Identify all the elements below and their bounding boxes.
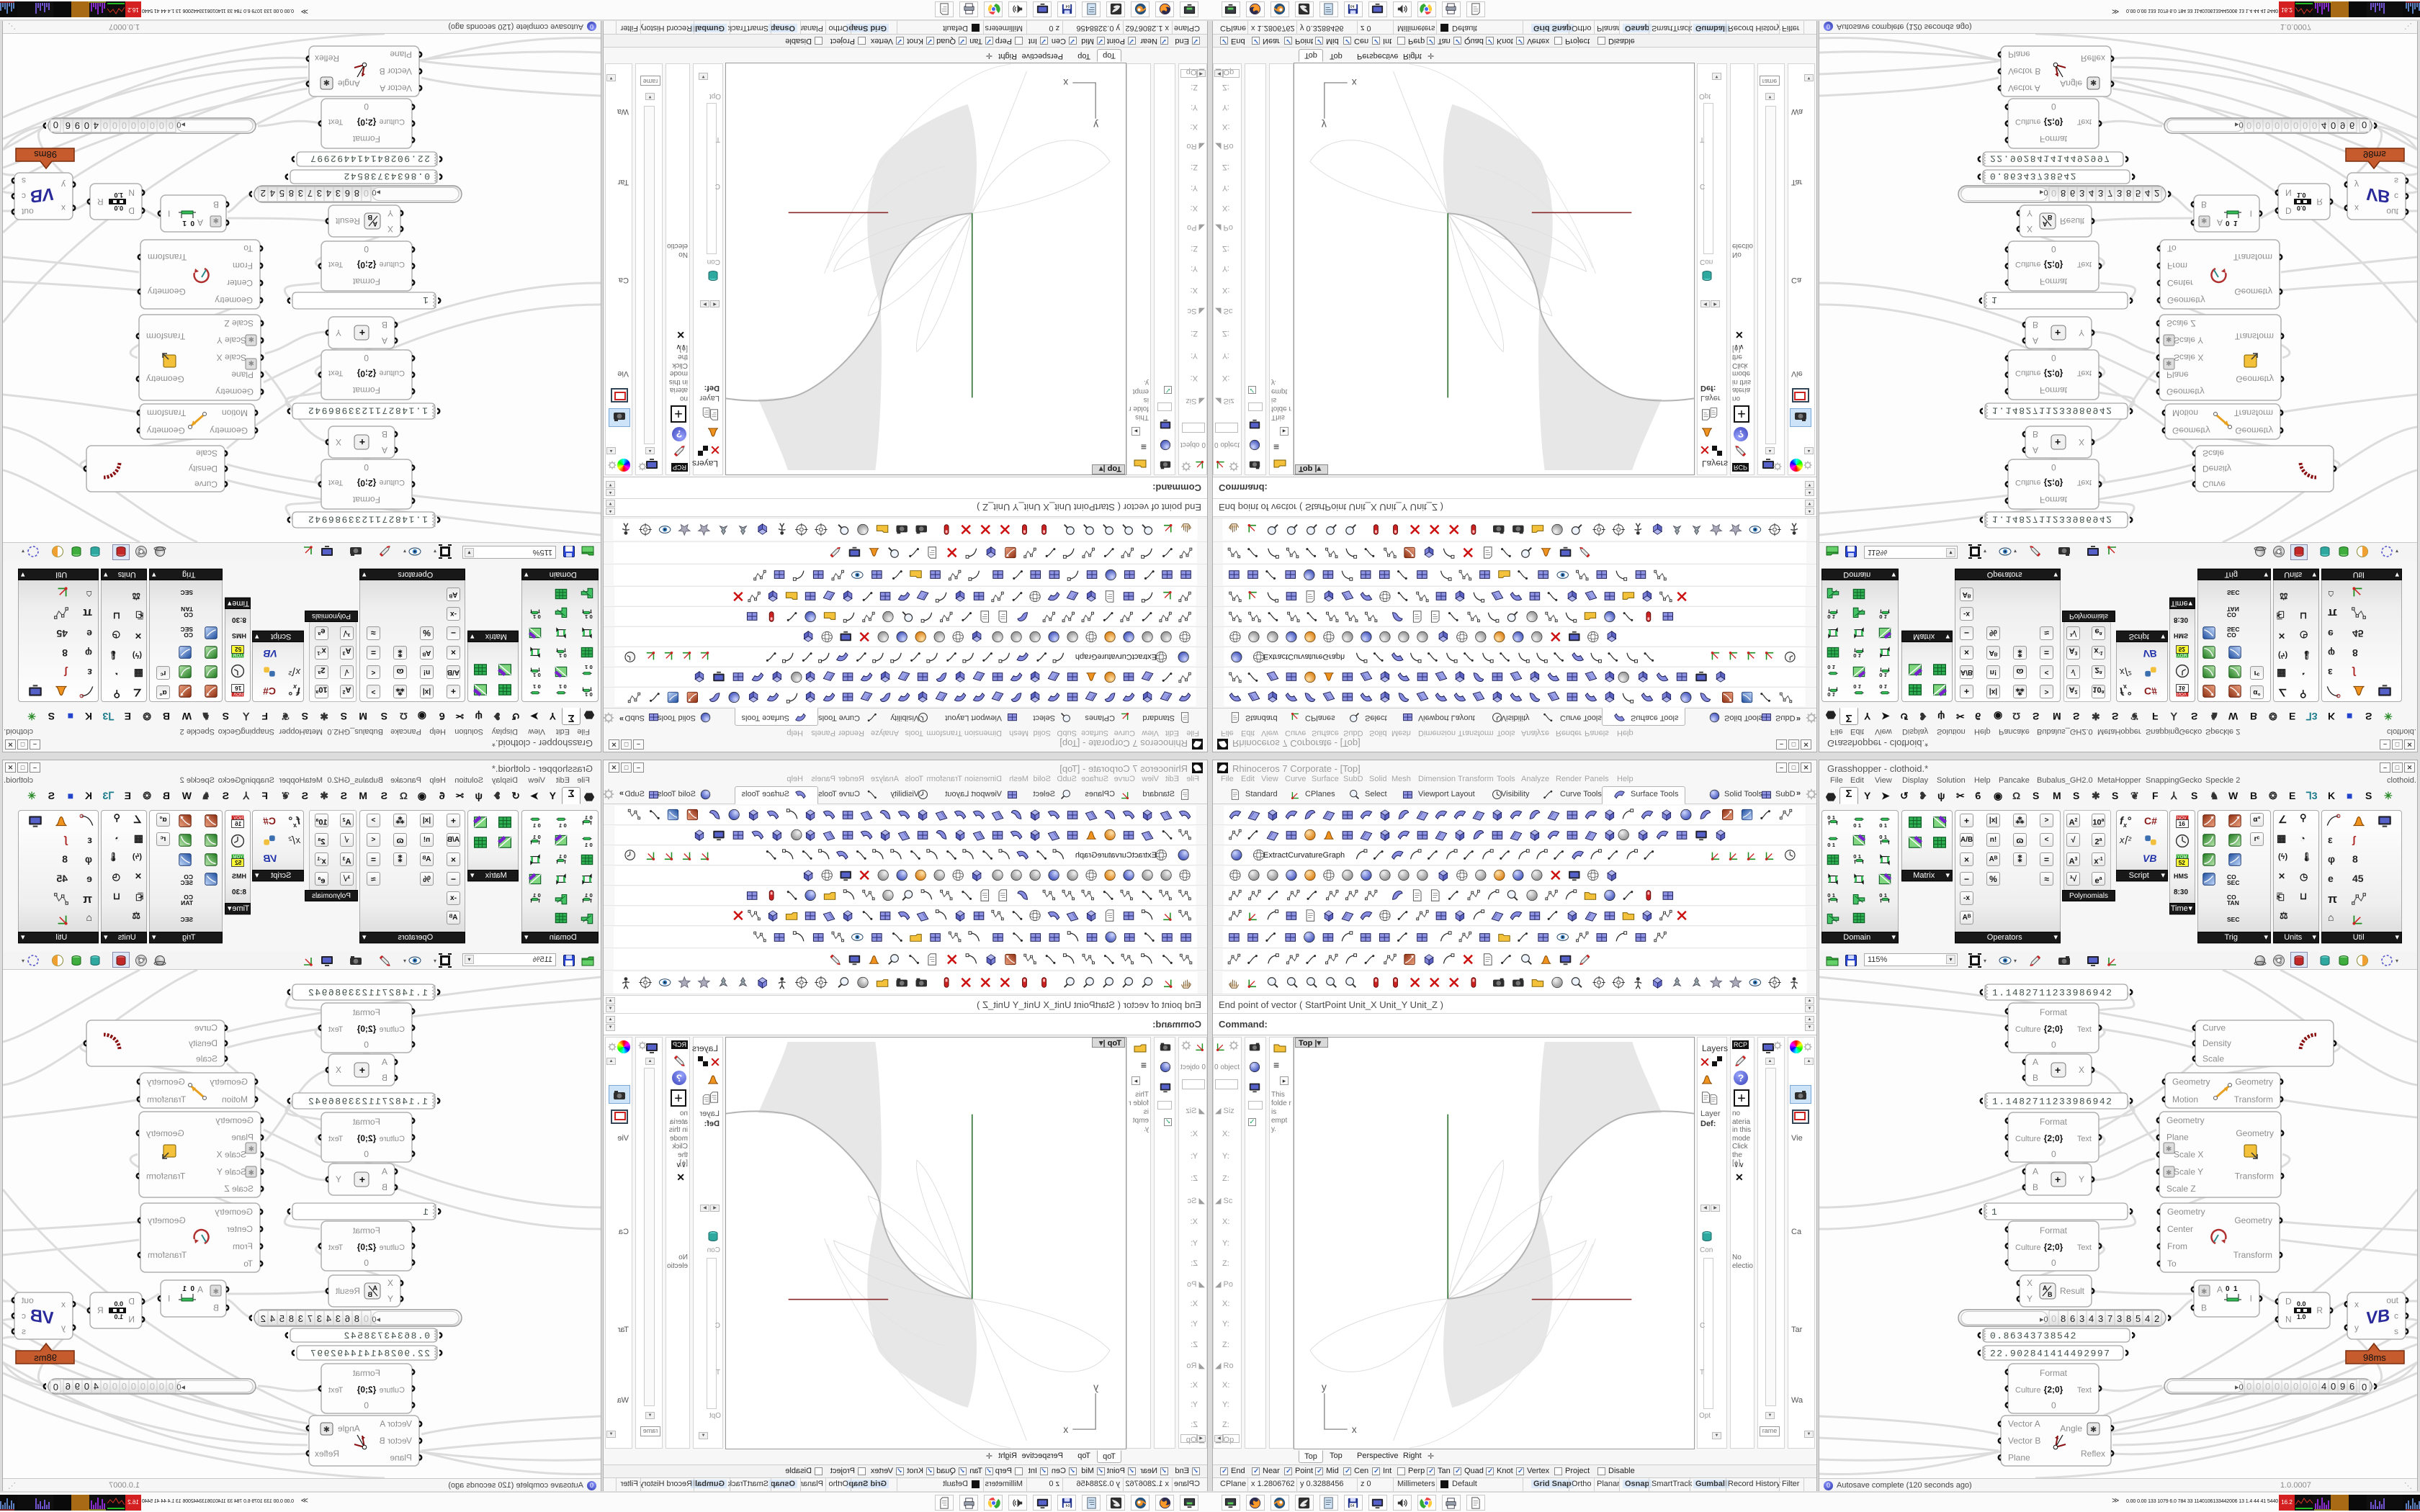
svg-text:B: B xyxy=(2033,1073,2038,1083)
svg-text:A: A xyxy=(382,445,387,455)
svg-text:From: From xyxy=(233,261,253,271)
svg-text:0: 0 xyxy=(2303,1381,2308,1392)
svg-text:To: To xyxy=(2167,1259,2177,1269)
svg-text:From: From xyxy=(2167,1241,2187,1251)
svg-text:0: 0 xyxy=(190,219,194,227)
svg-text:R: R xyxy=(2316,197,2323,207)
svg-text:Text: Text xyxy=(328,1243,343,1252)
svg-text:{2;0}: {2;0} xyxy=(357,260,376,270)
svg-text:X: X xyxy=(2079,437,2084,447)
svg-text:s: s xyxy=(2394,1326,2398,1336)
svg-text:0.86343738542: 0.86343738542 xyxy=(343,171,430,181)
svg-text:Scale Z: Scale Z xyxy=(2166,318,2196,328)
svg-text:Culture: Culture xyxy=(380,117,405,126)
svg-text:Geometry: Geometry xyxy=(215,295,253,305)
svg-text:Geometry: Geometry xyxy=(146,1128,184,1138)
svg-text:Text: Text xyxy=(328,260,343,269)
svg-text:Format: Format xyxy=(352,495,380,505)
svg-text:4: 4 xyxy=(2145,188,2150,199)
svg-text:Result: Result xyxy=(2060,216,2085,226)
svg-text:0.0: 0.0 xyxy=(114,204,123,212)
svg-text:1: 1 xyxy=(1991,294,1998,305)
svg-text:Geometry: Geometry xyxy=(2167,295,2205,305)
svg-text:Vector A: Vector A xyxy=(2008,1419,2040,1429)
svg-text:✱: ✱ xyxy=(248,1146,254,1153)
svg-text:A: A xyxy=(382,1166,387,1176)
svg-text:0: 0 xyxy=(2256,1381,2261,1392)
svg-text:0: 0 xyxy=(2051,1400,2056,1410)
svg-text:0: 0 xyxy=(84,1381,89,1392)
svg-text:Y: Y xyxy=(2027,1294,2033,1304)
svg-text:0: 0 xyxy=(2246,1381,2251,1392)
svg-text:0: 0 xyxy=(131,120,136,131)
svg-text:Culture: Culture xyxy=(2015,117,2040,126)
svg-text:{2;0}: {2;0} xyxy=(357,117,376,127)
svg-text:1.0: 1.0 xyxy=(114,192,123,199)
svg-text:y: y xyxy=(2354,1323,2359,1333)
svg-text:4: 4 xyxy=(2089,1313,2094,1324)
svg-text:0: 0 xyxy=(2331,120,2336,131)
svg-text:Vector B: Vector B xyxy=(380,1436,412,1446)
svg-text:0: 0 xyxy=(53,120,58,130)
svg-text:Culture: Culture xyxy=(380,260,405,269)
svg-text:3: 3 xyxy=(2079,1313,2084,1324)
svg-text:0: 0 xyxy=(150,120,155,131)
svg-text:✱: ✱ xyxy=(213,1288,219,1296)
svg-text:B: B xyxy=(2201,199,2207,210)
svg-text:Geometry: Geometry xyxy=(2172,426,2210,436)
svg-text:I: I xyxy=(2250,209,2252,219)
svg-text:0: 0 xyxy=(2362,1382,2367,1392)
svg-text:0: 0 xyxy=(2284,120,2289,131)
svg-text:Culture: Culture xyxy=(380,369,405,377)
svg-text:2: 2 xyxy=(261,188,266,199)
svg-text:0.0: 0.0 xyxy=(114,1300,123,1308)
svg-text:B: B xyxy=(382,1182,387,1192)
svg-text:B: B xyxy=(382,320,387,330)
svg-text:B: B xyxy=(382,429,387,439)
svg-text:3: 3 xyxy=(317,1313,322,1324)
svg-text:3: 3 xyxy=(2079,188,2084,199)
svg-text:0: 0 xyxy=(364,462,369,472)
svg-text:+: + xyxy=(359,1174,365,1185)
svg-text:+: + xyxy=(2055,1174,2061,1185)
svg-text:1.1482711233986942: 1.1482711233986942 xyxy=(1992,988,2112,999)
svg-text:Plane: Plane xyxy=(390,50,412,60)
svg-text:8: 8 xyxy=(289,188,294,199)
svg-text:5: 5 xyxy=(279,188,284,199)
svg-text:x: x xyxy=(61,1299,66,1309)
svg-text:0: 0 xyxy=(364,102,369,112)
svg-text:✱: ✱ xyxy=(2166,335,2172,343)
svg-text:0: 0 xyxy=(2265,1381,2270,1392)
svg-text:s: s xyxy=(22,176,26,186)
svg-text:Vector A: Vector A xyxy=(380,83,412,93)
svg-text:out: out xyxy=(2386,1295,2398,1305)
svg-text:0: 0 xyxy=(2362,120,2367,130)
svg-text:Text: Text xyxy=(328,1135,343,1143)
svg-text:6: 6 xyxy=(2349,120,2354,131)
svg-text:B: B xyxy=(382,1073,387,1083)
svg-text:To: To xyxy=(243,243,253,253)
svg-text:3: 3 xyxy=(2117,188,2122,199)
svg-text:B: B xyxy=(2048,214,2053,221)
svg-text:Culture: Culture xyxy=(380,1025,405,1034)
svg-text:Format: Format xyxy=(2040,1368,2068,1378)
svg-text:Text: Text xyxy=(2077,478,2092,487)
svg-text:6: 6 xyxy=(66,1381,71,1392)
svg-text:Scale Z: Scale Z xyxy=(224,318,254,328)
svg-text:R: R xyxy=(2316,1305,2323,1315)
svg-text:Text: Text xyxy=(2077,117,2092,126)
svg-text:Scale Z: Scale Z xyxy=(224,1184,254,1194)
svg-text:s: s xyxy=(2394,176,2398,186)
svg-text:Transform: Transform xyxy=(2233,1250,2272,1260)
svg-text:6: 6 xyxy=(2349,1381,2354,1392)
svg-text:6: 6 xyxy=(2070,1313,2075,1324)
svg-text:D: D xyxy=(2285,1297,2292,1307)
svg-text:Geometry: Geometry xyxy=(2234,287,2272,297)
svg-text:Curve: Curve xyxy=(2202,1023,2226,1033)
svg-text:98ms: 98ms xyxy=(2363,1352,2386,1363)
svg-text:3: 3 xyxy=(336,1313,341,1324)
svg-text:Geometry: Geometry xyxy=(215,387,254,397)
svg-text:0: 0 xyxy=(2051,1313,2056,1324)
svg-text:5: 5 xyxy=(2136,1313,2141,1324)
svg-text:1.0: 1.0 xyxy=(2297,192,2306,199)
svg-text:Y: Y xyxy=(336,328,341,338)
svg-text:Format: Format xyxy=(352,1117,380,1127)
svg-text:X: X xyxy=(387,1278,393,1288)
svg-text:1.1482711233986942: 1.1482711233986942 xyxy=(308,1097,428,1107)
svg-text:Center: Center xyxy=(2167,278,2193,288)
svg-text:X: X xyxy=(2027,224,2033,234)
svg-text:0: 0 xyxy=(103,120,108,131)
svg-text:0: 0 xyxy=(2293,1381,2298,1392)
svg-text:3: 3 xyxy=(2098,188,2103,199)
svg-text:Format: Format xyxy=(352,276,380,287)
svg-text:3: 3 xyxy=(298,188,303,199)
svg-text:✱: ✱ xyxy=(2166,359,2172,366)
svg-text:VB: VB xyxy=(2365,1306,2391,1328)
svg-text:Y: Y xyxy=(2079,1174,2084,1184)
svg-text:1.1482711233986942: 1.1482711233986942 xyxy=(308,988,428,999)
svg-text:Curve: Curve xyxy=(2202,479,2226,489)
svg-text:Culture: Culture xyxy=(380,478,405,487)
svg-text:Reflex: Reflex xyxy=(315,53,339,63)
svg-text:0: 0 xyxy=(2331,1381,2336,1392)
svg-text:0: 0 xyxy=(364,1258,369,1268)
svg-text:+: + xyxy=(2055,436,2061,448)
svg-text:{2;0}: {2;0} xyxy=(357,1385,376,1395)
svg-text:Culture: Culture xyxy=(2015,1135,2040,1143)
svg-text:Culture: Culture xyxy=(380,1386,405,1395)
svg-text:Geometry: Geometry xyxy=(2235,426,2273,436)
svg-text:Format: Format xyxy=(352,385,380,395)
svg-text:6: 6 xyxy=(66,120,71,131)
svg-text:Text: Text xyxy=(2077,260,2092,269)
svg-text:Text: Text xyxy=(2077,1386,2092,1395)
svg-text:VB: VB xyxy=(29,1306,55,1328)
svg-text:0: 0 xyxy=(159,1381,164,1392)
svg-text:22.902841414492997: 22.902841414492997 xyxy=(310,1349,430,1359)
svg-text:{2;0}: {2;0} xyxy=(357,478,376,488)
svg-text:Result: Result xyxy=(2060,1286,2085,1296)
svg-text:✱: ✱ xyxy=(2090,1426,2097,1434)
svg-text:1.1482711233986942: 1.1482711233986942 xyxy=(308,405,428,416)
svg-text:B: B xyxy=(213,199,219,210)
svg-text:1: 1 xyxy=(422,294,429,305)
svg-text:9: 9 xyxy=(75,1381,80,1392)
svg-text:7: 7 xyxy=(2107,1313,2112,1324)
svg-text:▸0: ▸0 xyxy=(2235,120,2244,129)
svg-text:N: N xyxy=(2285,1315,2292,1325)
svg-text:Format: Format xyxy=(2040,1007,2068,1017)
svg-text:8: 8 xyxy=(2126,1313,2131,1324)
svg-text:Text: Text xyxy=(2077,1025,2092,1034)
svg-text:c: c xyxy=(2394,192,2398,202)
svg-text:0: 0 xyxy=(2293,120,2298,131)
svg-text:✱: ✱ xyxy=(213,216,219,224)
svg-text:Geometry: Geometry xyxy=(2235,1076,2273,1086)
svg-text:✱: ✱ xyxy=(248,1169,254,1177)
svg-text:9: 9 xyxy=(2340,120,2345,131)
svg-text:Format: Format xyxy=(2040,1117,2068,1127)
svg-text:1: 1 xyxy=(2233,219,2238,227)
svg-text:Y: Y xyxy=(336,1174,341,1184)
svg-text:9: 9 xyxy=(75,120,80,131)
svg-text:Culture: Culture xyxy=(2015,1386,2040,1395)
svg-text:{2;0}: {2;0} xyxy=(357,1024,376,1034)
svg-text:22.902841414492997: 22.902841414492997 xyxy=(310,153,430,164)
svg-text:Format: Format xyxy=(2040,134,2068,144)
svg-text:x: x xyxy=(1352,77,1357,89)
svg-text:Vector B: Vector B xyxy=(380,66,412,76)
svg-text:Y: Y xyxy=(2027,208,2033,218)
svg-text:x: x xyxy=(1352,1423,1357,1435)
svg-text:Culture: Culture xyxy=(2015,1025,2040,1034)
svg-text:I: I xyxy=(2250,1294,2252,1304)
svg-text:y: y xyxy=(1093,1381,1098,1392)
svg-text:7: 7 xyxy=(308,188,313,199)
svg-text:Format: Format xyxy=(2040,1225,2068,1236)
svg-text:Geometry: Geometry xyxy=(210,426,248,436)
svg-text:0: 0 xyxy=(364,1313,369,1324)
svg-text:0: 0 xyxy=(122,1381,127,1392)
svg-text:y: y xyxy=(61,179,66,189)
svg-text:c: c xyxy=(22,192,26,202)
svg-text:Angle: Angle xyxy=(2060,1423,2082,1434)
svg-text:▸0: ▸0 xyxy=(176,120,185,129)
svg-text:0: 0 xyxy=(103,1381,108,1392)
svg-text:Curve: Curve xyxy=(194,1023,218,1033)
svg-text:1.1482711233986942: 1.1482711233986942 xyxy=(1992,1097,2112,1107)
svg-text:Center: Center xyxy=(227,278,253,288)
svg-text:1.1482711233986942: 1.1482711233986942 xyxy=(308,514,428,525)
svg-text:c: c xyxy=(22,1311,26,1321)
svg-text:98ms: 98ms xyxy=(34,149,57,160)
svg-text:0: 0 xyxy=(2051,244,2056,254)
svg-text:✱: ✱ xyxy=(248,335,254,343)
svg-text:5: 5 xyxy=(2136,188,2141,199)
svg-text:6: 6 xyxy=(345,188,350,199)
svg-text:1: 1 xyxy=(182,219,187,227)
svg-text:22.902841414492997: 22.902841414492997 xyxy=(1990,153,2110,164)
svg-text:▸0: ▸0 xyxy=(2235,1383,2244,1392)
svg-text:Transform: Transform xyxy=(2235,331,2274,341)
svg-text:0: 0 xyxy=(2312,1381,2317,1392)
svg-text:Scale: Scale xyxy=(2202,449,2224,459)
svg-text:0: 0 xyxy=(364,1149,369,1159)
svg-text:1.1482711233986942: 1.1482711233986942 xyxy=(1992,405,2112,416)
svg-text:1: 1 xyxy=(182,1285,187,1293)
svg-text:0: 0 xyxy=(2246,120,2251,131)
svg-text:{2;0}: {2;0} xyxy=(2044,260,2063,270)
svg-text:0.86343738542: 0.86343738542 xyxy=(343,1331,430,1341)
svg-text:Text: Text xyxy=(328,478,343,487)
svg-text:Motion: Motion xyxy=(222,1094,248,1104)
svg-text:0: 0 xyxy=(364,244,369,254)
svg-text:22.902841414492997: 22.902841414492997 xyxy=(1990,1349,2110,1359)
svg-text:y: y xyxy=(2354,179,2359,189)
svg-text:Text: Text xyxy=(2077,1243,2092,1252)
svg-text:Culture: Culture xyxy=(2015,1243,2040,1252)
svg-text:Transform: Transform xyxy=(146,331,185,341)
svg-text:98ms: 98ms xyxy=(2363,149,2386,160)
svg-text:Text: Text xyxy=(328,117,343,126)
svg-text:A: A xyxy=(2033,1057,2038,1067)
svg-text:Geometry: Geometry xyxy=(148,287,186,297)
svg-text:X: X xyxy=(2027,1278,2033,1288)
svg-text:D: D xyxy=(128,206,135,216)
svg-text:Text: Text xyxy=(328,1025,343,1034)
svg-text:{2;0}: {2;0} xyxy=(2044,1242,2063,1252)
svg-text:0: 0 xyxy=(2051,188,2056,199)
svg-text:4: 4 xyxy=(94,1381,99,1392)
svg-text:Geometry: Geometry xyxy=(2234,1215,2272,1225)
svg-text:Angle: Angle xyxy=(338,1423,360,1434)
svg-text:0: 0 xyxy=(112,1381,117,1392)
svg-text:Density: Density xyxy=(2202,464,2231,474)
svg-text:From: From xyxy=(2167,261,2187,271)
svg-text:0: 0 xyxy=(2051,102,2056,112)
svg-text:Result: Result xyxy=(335,216,360,226)
svg-text:+: + xyxy=(359,436,365,448)
svg-text:Transform: Transform xyxy=(147,408,186,418)
svg-text:x: x xyxy=(1063,77,1068,89)
svg-text:0: 0 xyxy=(364,1400,369,1410)
svg-text:0: 0 xyxy=(53,1382,58,1392)
svg-text:✱: ✱ xyxy=(323,78,330,86)
svg-text:0: 0 xyxy=(2265,120,2270,131)
svg-text:Center: Center xyxy=(227,1224,253,1234)
svg-text:Plane: Plane xyxy=(2008,1452,2030,1462)
svg-text:0: 0 xyxy=(2256,120,2261,131)
svg-text:Geometry: Geometry xyxy=(2166,387,2205,397)
svg-text:{2;0}: {2;0} xyxy=(2044,369,2063,379)
svg-text:4: 4 xyxy=(2089,188,2094,199)
svg-text:Curve: Curve xyxy=(194,479,218,489)
svg-text:{2;0}: {2;0} xyxy=(357,1242,376,1252)
svg-text:Transform: Transform xyxy=(2235,1171,2274,1181)
svg-text:4: 4 xyxy=(270,188,275,199)
svg-text:0: 0 xyxy=(169,120,174,131)
svg-text:Geometry: Geometry xyxy=(147,1076,185,1086)
svg-text:4: 4 xyxy=(94,120,99,131)
svg-text:B: B xyxy=(2201,1302,2207,1313)
svg-text:7: 7 xyxy=(2107,188,2112,199)
svg-text:A: A xyxy=(2217,1284,2223,1295)
svg-text:0: 0 xyxy=(190,1285,194,1293)
svg-text:8: 8 xyxy=(289,1313,294,1324)
svg-text:0: 0 xyxy=(84,120,89,131)
svg-text:Text: Text xyxy=(328,369,343,377)
svg-text:Reflex: Reflex xyxy=(315,1449,339,1459)
svg-text:From: From xyxy=(233,1241,253,1251)
svg-text:Format: Format xyxy=(352,1007,380,1017)
svg-text:Geometry: Geometry xyxy=(215,1115,254,1125)
svg-text:6: 6 xyxy=(345,1313,350,1324)
svg-text:3: 3 xyxy=(336,188,341,199)
svg-text:3: 3 xyxy=(2117,1313,2122,1324)
svg-text:y: y xyxy=(1093,120,1098,131)
svg-text:I: I xyxy=(168,1294,170,1304)
svg-text:Vector B: Vector B xyxy=(2008,1436,2040,1446)
svg-text:To: To xyxy=(2167,243,2177,253)
svg-text:D: D xyxy=(2285,206,2292,216)
svg-text:{2;0}: {2;0} xyxy=(357,369,376,379)
svg-text:0.0: 0.0 xyxy=(2297,1300,2306,1308)
svg-text:Density: Density xyxy=(189,1038,218,1048)
svg-text:Result: Result xyxy=(335,1286,360,1296)
svg-text:I: I xyxy=(168,209,170,219)
svg-text:B: B xyxy=(2033,429,2038,439)
svg-text:0: 0 xyxy=(122,120,127,131)
svg-text:▸0: ▸0 xyxy=(372,188,380,197)
svg-text:8: 8 xyxy=(354,188,359,199)
svg-text:x: x xyxy=(2354,203,2359,213)
svg-text:Transform: Transform xyxy=(148,1250,187,1260)
svg-text:Transform: Transform xyxy=(148,252,187,262)
svg-text:Scale: Scale xyxy=(196,1053,218,1063)
svg-text:B: B xyxy=(367,1291,372,1298)
svg-text:R: R xyxy=(97,197,104,207)
svg-text:Culture: Culture xyxy=(2015,369,2040,377)
svg-text:out: out xyxy=(21,207,33,217)
svg-text:B: B xyxy=(2048,1291,2053,1298)
svg-text:0: 0 xyxy=(2312,120,2317,131)
svg-text:A: A xyxy=(2033,336,2038,346)
svg-text:Text: Text xyxy=(328,1386,343,1395)
svg-text:Vector A: Vector A xyxy=(380,1419,412,1429)
svg-text:Geometry: Geometry xyxy=(148,1215,186,1225)
svg-text:1.0: 1.0 xyxy=(114,1313,123,1320)
svg-text:Format: Format xyxy=(352,134,380,144)
svg-text:x: x xyxy=(61,203,66,213)
svg-text:0: 0 xyxy=(2051,1258,2056,1268)
svg-text:B: B xyxy=(213,1302,219,1313)
svg-text:2: 2 xyxy=(2154,188,2159,199)
svg-text:0: 0 xyxy=(2226,1285,2230,1293)
svg-text:0: 0 xyxy=(112,120,117,131)
svg-text:c: c xyxy=(2394,1311,2398,1321)
svg-text:1: 1 xyxy=(422,1207,429,1218)
svg-text:8: 8 xyxy=(2061,1313,2066,1324)
svg-text:8: 8 xyxy=(2061,188,2066,199)
svg-text:4: 4 xyxy=(326,188,331,199)
svg-text:98ms: 98ms xyxy=(34,1352,57,1363)
svg-text:0.86343738542: 0.86343738542 xyxy=(1990,1331,2077,1341)
